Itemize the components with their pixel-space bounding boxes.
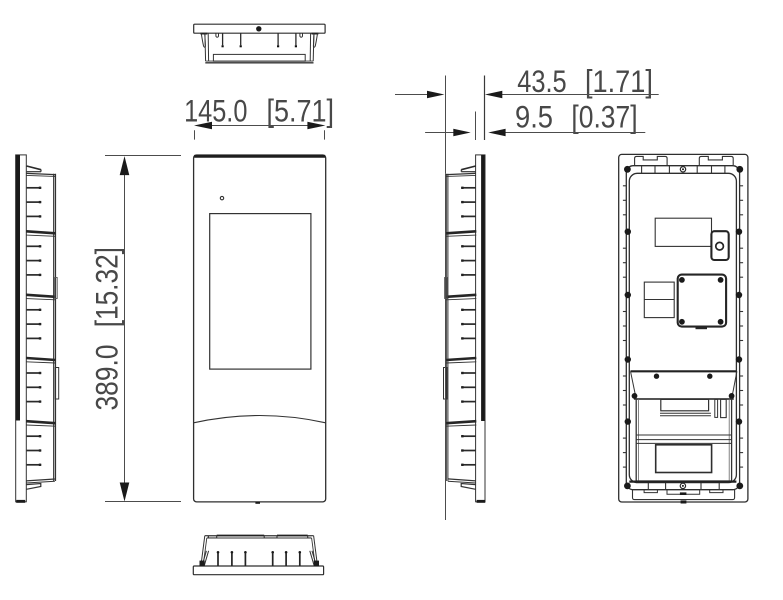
svg-text:43.5: 43.5 (517, 63, 567, 99)
svg-text:[5.71]: [5.71] (267, 93, 335, 129)
svg-text:9.5: 9.5 (515, 98, 553, 134)
svg-text:[0.37]: [0.37] (571, 98, 637, 134)
svg-text:[1.71]: [1.71] (585, 63, 653, 99)
svg-text:145.0: 145.0 (184, 93, 247, 129)
